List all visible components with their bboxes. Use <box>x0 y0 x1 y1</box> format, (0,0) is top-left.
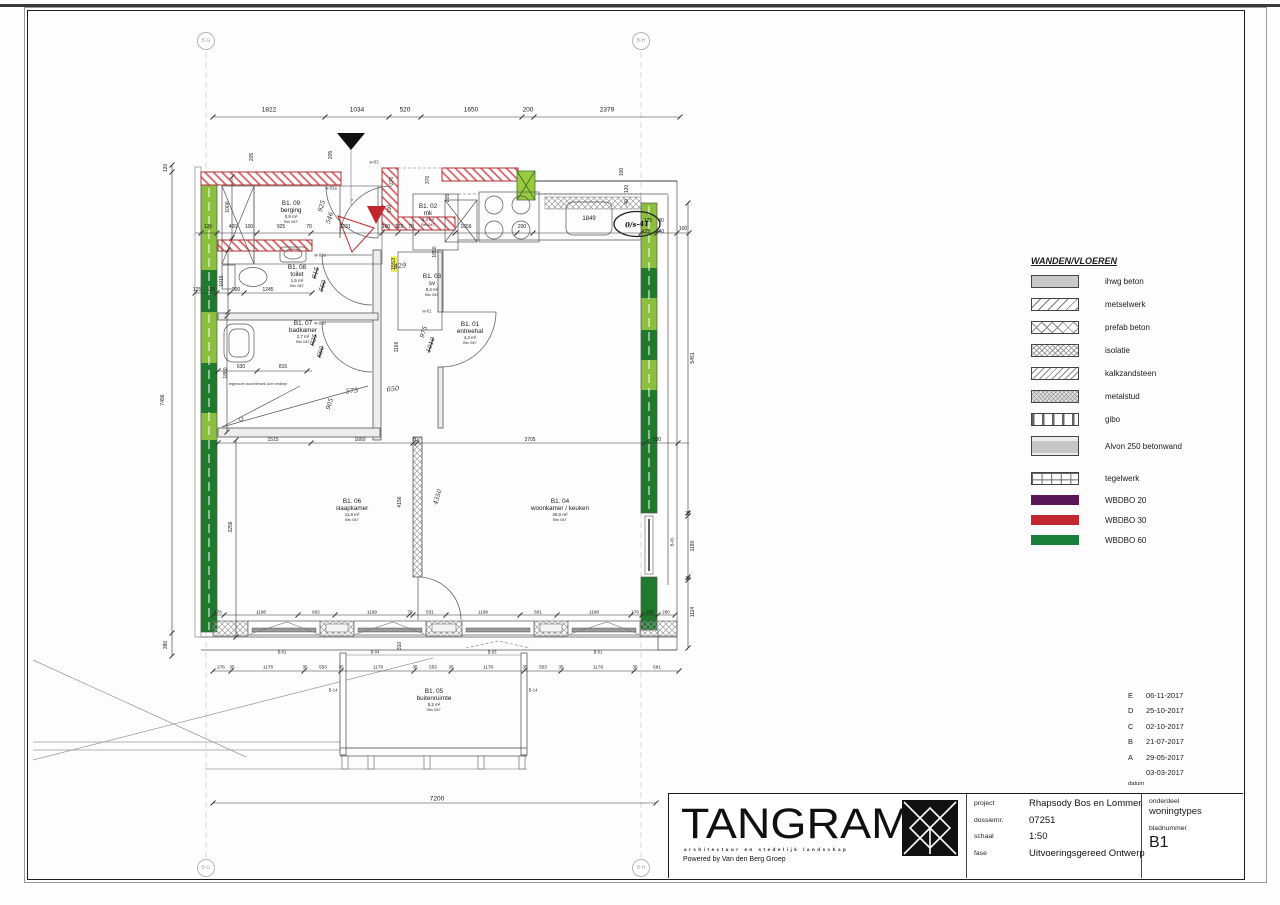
plan-label: 35 <box>685 576 691 582</box>
plan-label: 1114 <box>690 607 696 617</box>
grid-marker: B-H <box>632 859 650 877</box>
plan-label: 140 <box>656 229 664 235</box>
plan-label: B-06 <box>670 538 675 547</box>
plan-label: 329 <box>395 224 403 230</box>
revision-footer-label: datum <box>1128 781 1240 787</box>
titleblock-field: faseUitvoeringsgereed Ontwerp <box>974 848 1139 859</box>
legend-row: metselwerk <box>1031 298 1241 311</box>
plan-label: 35 <box>558 665 563 670</box>
titleblock-divider-1 <box>966 794 967 878</box>
legend-label: WBDBO 30 <box>1105 516 1146 525</box>
plan-label: B-01 <box>594 650 603 655</box>
plan-label: 575 <box>345 386 358 395</box>
legend-row: ihwg beton <box>1031 275 1241 288</box>
room-label: B1. 05buitenruimte5,2 m²Brv 047 <box>417 688 452 712</box>
legend-swatch-vbars <box>1031 413 1079 426</box>
legend-label: prefab beton <box>1105 323 1150 332</box>
titleblock-field: projectRhapsody Bos en Lommer <box>974 798 1139 809</box>
plan-label: 602 <box>312 610 320 615</box>
revision-rows: E06-11-2017D25-10-2017C02-10-2017B21-07-… <box>1128 688 1240 780</box>
legend-title: WANDEN/VLOEREN <box>1031 256 1241 266</box>
legend-row: WBDBO 30 <box>1031 515 1241 525</box>
grid-marker: B-H <box>632 32 650 50</box>
legend-row: kalkzandsteen <box>1031 367 1241 380</box>
legend-items: ihwg betonmetselwerkprefab betonisolatie… <box>1031 275 1241 545</box>
plan-label: B-03 <box>488 650 497 655</box>
legend-label: Alvon 250 betonwand <box>1105 442 1182 451</box>
room-label: B1. 06slaapkamer11,8 m²Brv 047 <box>336 498 369 522</box>
plan-label: tegenover douchehoek 1cm verdiept <box>229 382 287 386</box>
plan-label: 35 <box>632 665 637 670</box>
tangram-logo-tagline: architectuur en stedelijk landschap <box>684 847 848 852</box>
plan-label: 5451 <box>690 352 696 363</box>
plan-label: 200 <box>523 107 534 114</box>
plan-label: w-01 <box>422 309 431 314</box>
plan-label: 40 <box>658 218 664 224</box>
onderdeel-value: woningtypes <box>1149 806 1241 817</box>
plan-label: 1034 <box>350 107 364 114</box>
plan-label: 1166 <box>394 342 400 353</box>
plan-label: 35 <box>685 511 691 517</box>
plan-label: 40 <box>624 199 630 205</box>
plan-label: 815 <box>279 364 287 370</box>
plan-label: 100 <box>382 224 390 230</box>
title-block: TANGRAM architectuur en stedelijk landsc… <box>668 793 1243 878</box>
plan-label: 553 <box>429 665 437 670</box>
plan-label: 100 <box>679 226 687 232</box>
legend-swatch-metal <box>1031 390 1079 403</box>
legend-label: WBDBO 20 <box>1105 496 1146 505</box>
room-label: B1. 09berging0,9 m²Brv 047 <box>280 200 301 224</box>
plan-label: 125 <box>193 287 201 293</box>
room-label: B1. 02mk0,3 m²Brv 047 <box>419 203 437 227</box>
plan-label: 1198 <box>256 610 266 615</box>
tangram-logo-text: TANGRAM <box>681 800 910 849</box>
legend-row: gibo <box>1031 413 1241 426</box>
plan-label: 1231 <box>339 224 350 230</box>
plan-label: 100 <box>387 205 393 213</box>
plan-label: 120 <box>163 164 169 172</box>
plan-label: 70 <box>306 224 312 230</box>
legend-label: kalkzandsteen <box>1105 369 1156 378</box>
tangram-logo-powered: Powered by Van den Berg Groep <box>683 856 786 863</box>
plan-label: 70 <box>407 610 412 615</box>
legend-row: tegelwerk <box>1031 472 1241 485</box>
plan-label: 310 <box>397 642 403 650</box>
legend-swatch-diag <box>1031 298 1079 311</box>
titleblock-fields: projectRhapsody Bos en Lommerdossiernr.0… <box>974 798 1139 864</box>
plan-label: 255 <box>646 610 654 615</box>
room-label: B1. 08toilet1,5 m²Brv 047 <box>288 264 306 288</box>
plan-label: 1199 <box>478 610 488 615</box>
plan-label: w-01a <box>325 186 336 191</box>
plan-label: B-01 <box>278 650 287 655</box>
legend-row: Alvon 250 betonwand <box>1031 436 1241 456</box>
plan-label: 1198 <box>589 610 599 615</box>
legend-label: ihwg beton <box>1105 277 1144 286</box>
plan-label: 35 <box>338 665 343 670</box>
room-label: B1. 04woonkamer / keuken26,0 m²Brv 047 <box>531 498 589 522</box>
plan-label: 1178 <box>593 665 603 670</box>
revision-row: B21-07-2017 <box>1128 734 1240 749</box>
tangram-logo-icon <box>901 799 959 857</box>
room-label: B1. 03sv0,4 m²Brv 047 <box>423 273 441 297</box>
plan-label: 176 <box>214 610 222 615</box>
plan-label: 205 <box>445 194 451 202</box>
revision-row: C02-10-2017 <box>1128 719 1240 734</box>
plan-label: 3256 <box>228 521 234 532</box>
legend-row: WBDBO 20 <box>1031 495 1241 505</box>
plan-label: 429 <box>393 261 406 270</box>
plan-label: 1660 <box>354 437 365 443</box>
drawing-sheet: B-GB-HB-GB-H WANDEN/VLOEREN ihwg betonme… <box>0 0 1280 905</box>
plan-label: 35 <box>229 665 234 670</box>
titleblock-field: schaal1:50 <box>974 831 1139 842</box>
plan-label: w-02a <box>314 253 325 258</box>
plan-label: 276 <box>389 177 395 185</box>
plan-label: 176 <box>631 610 639 615</box>
plan-label: 1656 <box>460 224 471 230</box>
revision-row: E06-11-2017 <box>1128 688 1240 703</box>
legend-swatch-bar <box>1031 515 1079 525</box>
legend-label: metalstud <box>1105 392 1140 401</box>
legend-swatch-diag2 <box>1031 367 1079 380</box>
plan-label: × <box>351 198 353 203</box>
revision-row: D25-10-2017 <box>1128 703 1240 718</box>
plan-label: 1650 <box>464 107 478 114</box>
plan-label: 1199 <box>367 610 377 615</box>
plan-label: 35 <box>522 665 527 670</box>
plan-label: 125 <box>204 224 212 230</box>
titleblock-right: onderdeel woningtypes bladnummer B1 <box>1149 798 1241 852</box>
plan-label: 200 <box>232 287 240 293</box>
plan-label: 1000 <box>225 201 231 212</box>
plan-label: B-04 <box>371 650 380 655</box>
plan-label: 380 <box>163 641 169 649</box>
plan-label: 1650 <box>432 246 438 257</box>
plan-label: 1180 <box>690 541 696 552</box>
plan-label: 3705 <box>524 437 535 443</box>
legend-swatch-alvon <box>1031 436 1079 456</box>
plan-label: 100 <box>619 168 625 176</box>
plan-label: 2379 <box>600 107 614 114</box>
onderdeel-label: onderdeel <box>1149 798 1241 805</box>
plan-label: 1822 <box>262 107 276 114</box>
plan-label: 925 <box>277 224 285 230</box>
legend-row: WBDBO 60 <box>1031 535 1241 545</box>
plan-label: 0/s-41 <box>625 219 650 230</box>
plan-label: 7496 <box>160 394 166 405</box>
plan-label: 553 <box>319 665 327 670</box>
plan-label: 520 <box>400 107 411 114</box>
plan-label: 70 <box>408 224 414 230</box>
plan-label: 35 <box>448 665 453 670</box>
plan-label: 100 <box>245 224 253 230</box>
legend-label: gibo <box>1105 415 1120 424</box>
legend-swatch-tiles <box>1031 472 1079 485</box>
revision-list: E06-11-2017D25-10-2017C02-10-2017B21-07-… <box>1128 688 1240 787</box>
plan-label: 630 <box>237 364 245 370</box>
plan-label: 420 <box>229 224 237 230</box>
revision-row: 03-03-2017 <box>1128 765 1240 780</box>
plan-label: 1178 <box>263 665 273 670</box>
legend-row: prefab beton <box>1031 321 1241 334</box>
plan-label: 35 <box>302 665 307 670</box>
legend-swatch-solid <box>1031 275 1079 288</box>
legend-swatch-bar <box>1031 535 1079 545</box>
room-label: B1. 07badkamer2,7 m²Brv 047 <box>289 320 317 344</box>
plan-label: 35 <box>412 665 417 670</box>
plan-label: 200 <box>518 224 526 230</box>
plan-label: 376 <box>425 176 431 184</box>
plan-label: 4156 <box>397 496 403 507</box>
plan-label: 125 <box>207 287 215 293</box>
plan-label: 70 <box>412 437 418 443</box>
plan-label: 276 <box>217 665 225 670</box>
legend-label: metselwerk <box>1105 300 1145 309</box>
plan-label: 553 <box>539 665 547 670</box>
plan-label: 1015 <box>219 275 225 286</box>
room-label: B1. 01entreehal4,4 m²Brv 047 <box>457 321 483 345</box>
legend-swatch-bar <box>1031 495 1079 505</box>
grid-marker: B-G <box>197 859 215 877</box>
revision-row: A29-05-2017 <box>1128 750 1240 765</box>
legend: WANDEN/VLOEREN ihwg betonmetselwerkprefa… <box>1031 256 1241 555</box>
bladnummer-value: B1 <box>1149 834 1241 852</box>
plan-label: 650 <box>386 384 399 393</box>
plan-label: 531 <box>426 610 434 615</box>
plan-label: 205 <box>328 151 334 159</box>
plan-label: 1515 <box>267 437 278 443</box>
plan-label: 1880 <box>223 367 229 378</box>
plan-label: 1178 <box>373 665 383 670</box>
plan-label: 681 <box>653 665 661 670</box>
plan-label: 601 <box>534 610 542 615</box>
plan-label: B-14 <box>529 688 538 693</box>
plan-label: 205 <box>249 153 255 161</box>
bladnummer-label: bladnummer <box>1149 825 1241 832</box>
plan-label: 280 <box>662 610 670 615</box>
legend-swatch-dense <box>1031 344 1079 357</box>
plan-label: 1849 <box>582 216 595 222</box>
plan-label: B-14 <box>329 688 338 693</box>
legend-label: tegelwerk <box>1105 474 1139 483</box>
plan-label: 530 <box>653 437 661 443</box>
plan-label: 120 <box>624 185 630 193</box>
legend-label: isolatie <box>1105 346 1130 355</box>
plan-label: 1178 <box>483 665 493 670</box>
titleblock-field: dossiernr.07251 <box>974 815 1139 826</box>
plan-label: 1245 <box>262 287 273 293</box>
legend-label: WBDBO 60 <box>1105 536 1146 545</box>
legend-row: isolatie <box>1031 344 1241 357</box>
plan-label: w-03 <box>369 160 378 165</box>
legend-row: metalstud <box>1031 390 1241 403</box>
plan-label: 7200 <box>430 796 444 803</box>
grid-marker: B-G <box>197 32 215 50</box>
legend-swatch-crossx <box>1031 321 1079 334</box>
plan-label: 125 <box>642 229 650 235</box>
